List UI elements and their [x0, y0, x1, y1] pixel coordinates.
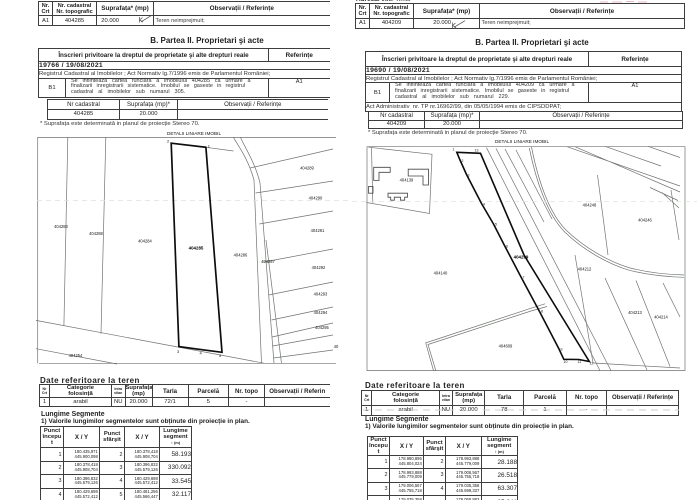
svg-text:404290: 404290 — [309, 196, 323, 201]
svg-text:404254: 404254 — [69, 353, 83, 358]
svg-text:13: 13 — [475, 149, 479, 153]
svg-text:404284: 404284 — [138, 239, 152, 244]
svg-text:7: 7 — [523, 276, 525, 280]
svg-text:6: 6 — [506, 245, 508, 249]
svg-text:404140: 404140 — [434, 271, 448, 276]
svg-text:404293: 404293 — [314, 292, 328, 297]
svg-text:2: 2 — [462, 159, 464, 163]
svg-text:404214: 404214 — [654, 315, 668, 320]
svg-text:404291: 404291 — [311, 228, 325, 233]
svg-text:3: 3 — [468, 174, 470, 178]
svg-text:404246: 404246 — [638, 218, 652, 223]
svg-text:5: 5 — [495, 223, 497, 227]
svg-text:404287: 404287 — [261, 259, 275, 264]
svg-text:404288: 404288 — [89, 231, 103, 236]
svg-text:40: 40 — [334, 344, 339, 349]
svg-text:12: 12 — [590, 362, 594, 366]
svg-text:10: 10 — [564, 360, 568, 364]
svg-text:404139: 404139 — [400, 178, 414, 183]
svg-text:404213: 404213 — [628, 310, 642, 315]
svg-text:2: 2 — [167, 139, 170, 144]
svg-text:404209: 404209 — [514, 255, 529, 260]
svg-text:404283: 404283 — [54, 224, 68, 229]
svg-text:9: 9 — [561, 348, 563, 352]
svg-text:404285: 404285 — [189, 246, 204, 251]
svg-text:404248: 404248 — [583, 203, 597, 208]
svg-text:404292: 404292 — [312, 265, 326, 270]
svg-text:4: 4 — [483, 203, 485, 207]
svg-text:404294: 404294 — [314, 310, 328, 315]
svg-text:404295: 404295 — [315, 325, 329, 330]
svg-text:8: 8 — [541, 310, 543, 314]
svg-text:404289: 404289 — [300, 166, 314, 171]
svg-text:1: 1 — [453, 148, 455, 152]
svg-text:11: 11 — [578, 360, 582, 364]
svg-text:3: 3 — [177, 349, 180, 354]
svg-text:404286: 404286 — [234, 253, 248, 258]
svg-text:404212: 404212 — [578, 267, 592, 272]
svg-text:404609: 404609 — [499, 344, 513, 349]
